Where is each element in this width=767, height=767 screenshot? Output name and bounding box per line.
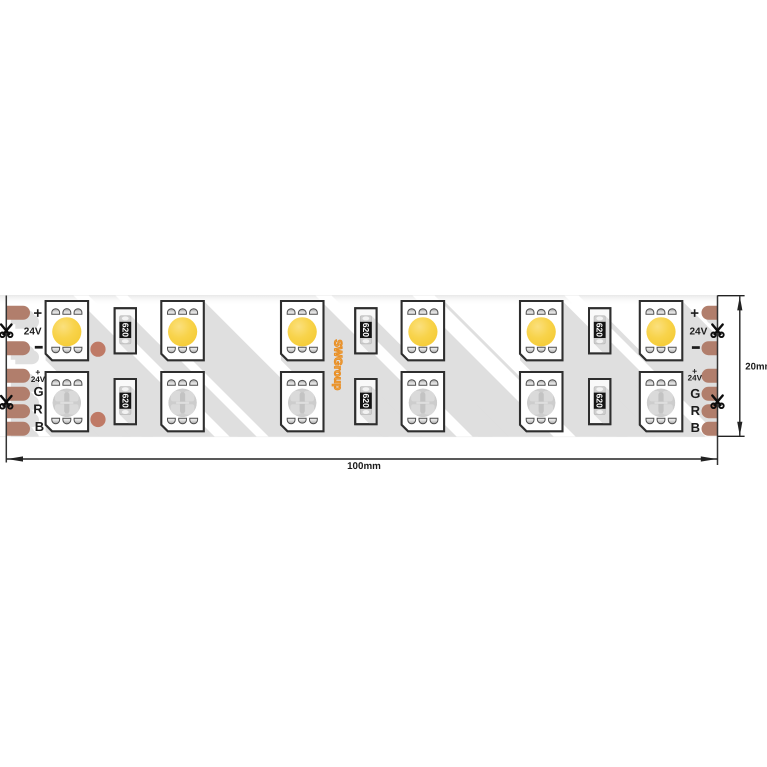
svg-text:620: 620 xyxy=(595,394,605,409)
svg-text:24V: 24V xyxy=(31,375,46,384)
svg-text:620: 620 xyxy=(120,323,130,338)
svg-text:B: B xyxy=(35,419,44,434)
svg-text:100mm: 100mm xyxy=(347,461,381,472)
svg-text:SWGroup: SWGroup xyxy=(331,340,343,391)
svg-text:24V: 24V xyxy=(688,374,703,383)
svg-text:20mm: 20mm xyxy=(745,361,767,372)
svg-text:620: 620 xyxy=(120,394,130,409)
svg-text:620: 620 xyxy=(361,394,371,409)
svg-text:R: R xyxy=(691,403,701,418)
svg-text:620: 620 xyxy=(361,323,371,338)
svg-text:+: + xyxy=(690,305,699,322)
svg-text:24V: 24V xyxy=(24,327,42,338)
svg-text:G: G xyxy=(690,386,700,401)
svg-text:G: G xyxy=(33,384,43,399)
svg-text:B: B xyxy=(691,420,700,435)
svg-text:R: R xyxy=(33,401,43,416)
svg-text:+: + xyxy=(33,305,42,322)
svg-text:620: 620 xyxy=(595,323,605,338)
svg-text:24V: 24V xyxy=(690,327,708,338)
